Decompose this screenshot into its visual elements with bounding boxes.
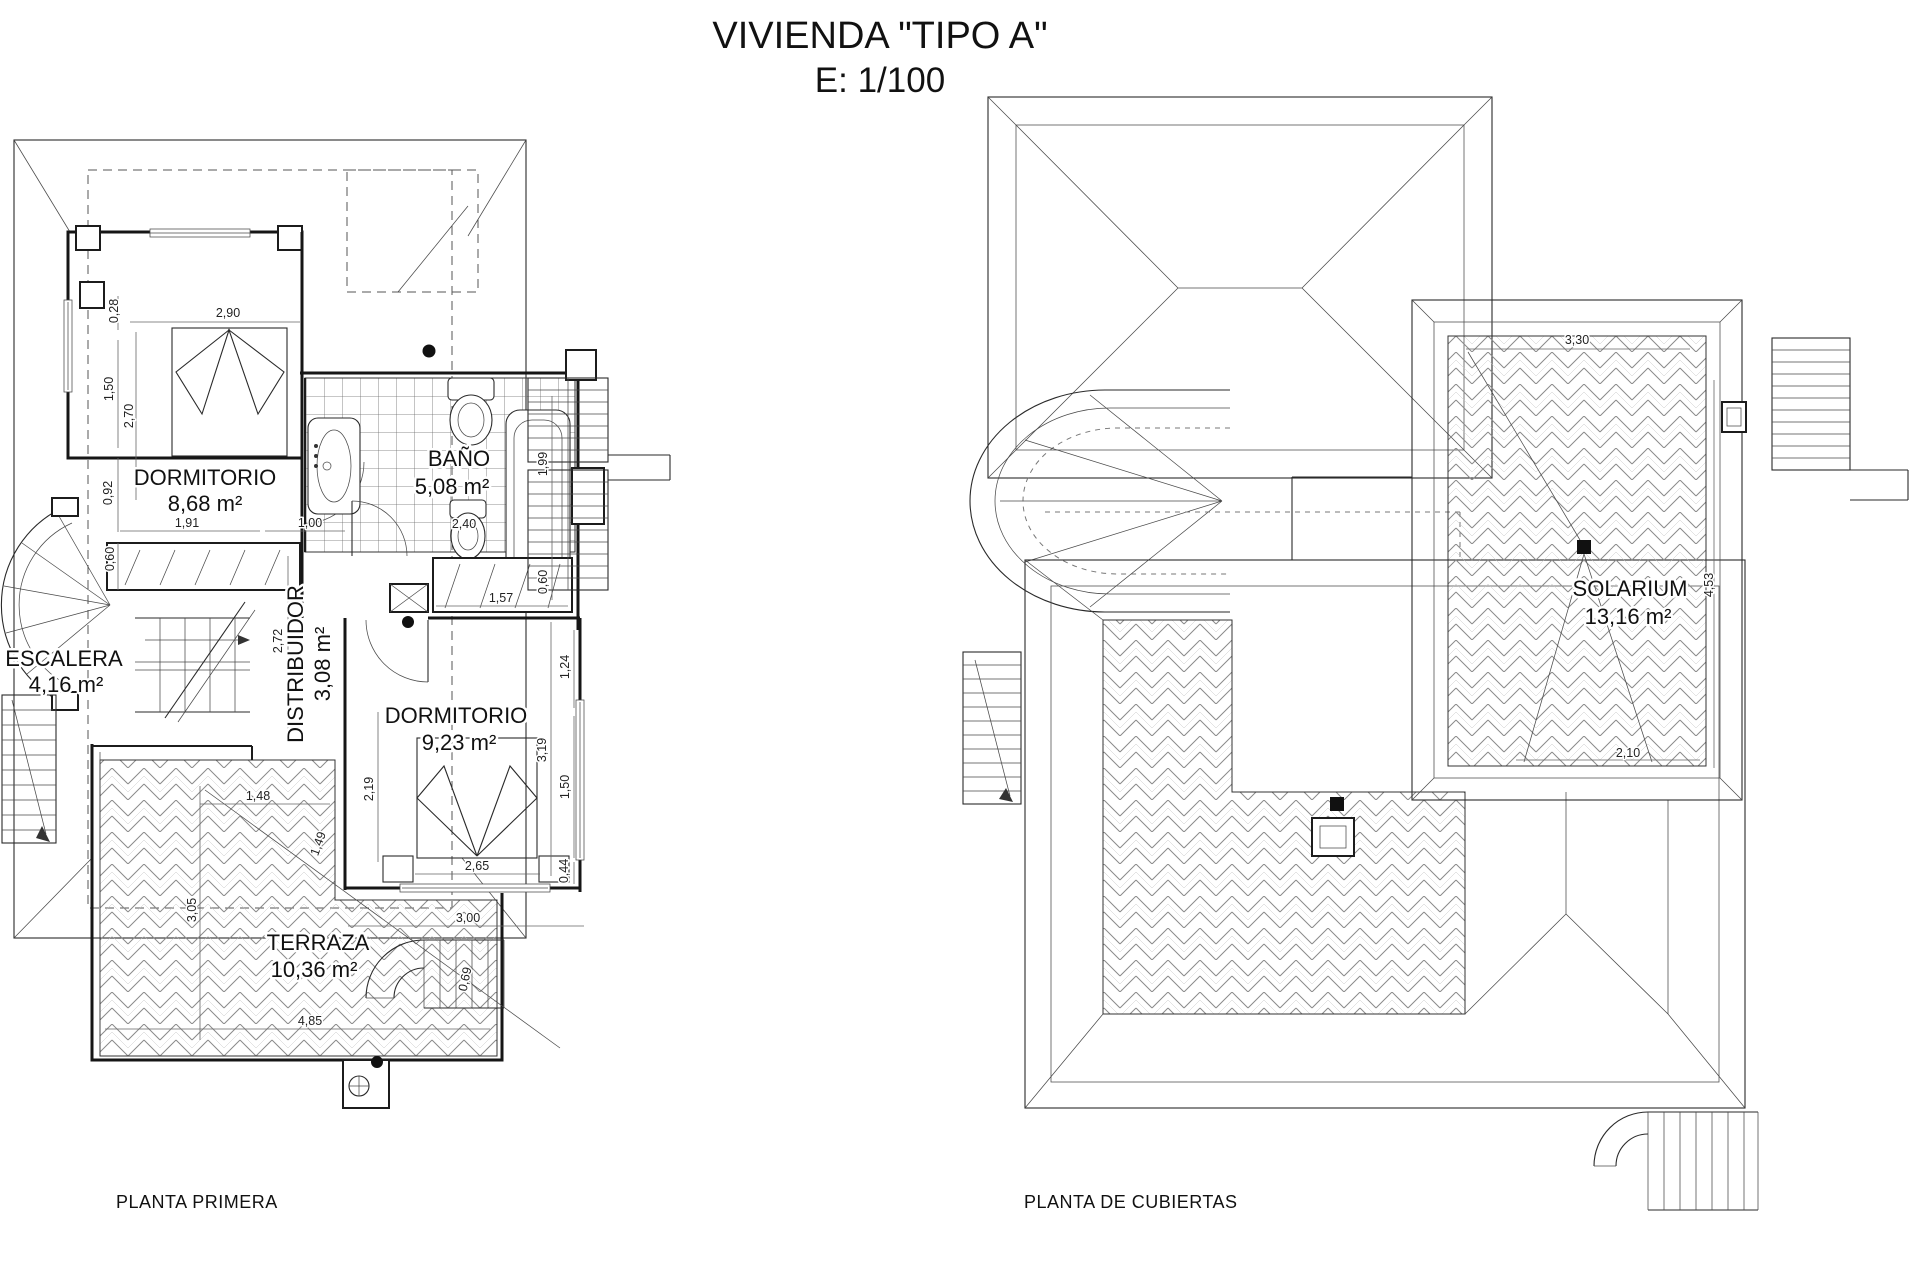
wall-pilaster <box>278 226 302 250</box>
dimension-label: 3,19 <box>535 738 549 762</box>
plan-planta-cubiertas: SOLARIUM13,16 m²3,304,532,10 PLANTA DE C… <box>963 97 1908 1212</box>
apse-roof <box>970 390 1230 612</box>
sheet-title: VIVIENDA "TIPO A" <box>712 15 1047 57</box>
straight-stair <box>135 602 255 722</box>
wall-pilaster <box>572 468 604 524</box>
room-label: TERRAZA <box>267 930 370 955</box>
dimension-label: 2,19 <box>362 777 376 801</box>
dimension-label: 0,28 <box>107 299 121 323</box>
room-area-label: 4,16 m² <box>29 672 104 697</box>
room-area-label: 9,23 m² <box>422 730 497 755</box>
roof-stair-right-top <box>1772 338 1908 500</box>
wall-pilaster <box>80 282 104 308</box>
dimension-label: 0,92 <box>101 481 115 505</box>
wall-pilaster <box>76 226 100 250</box>
roof-drain-dot <box>423 345 436 358</box>
dimension-label: 2,90 <box>216 306 240 320</box>
solarium-marker <box>1577 540 1591 554</box>
roof-ladder-left <box>963 652 1021 804</box>
dimension-label: 1,24 <box>558 655 572 679</box>
drawing-sheet: VIVIENDA "TIPO A" E: 1/100 <box>0 0 1920 1280</box>
nightstand <box>383 856 413 882</box>
dimension-label: 1,91 <box>175 516 199 530</box>
stair-direction-arrow <box>238 635 250 645</box>
door-bedroom-2 <box>366 620 428 682</box>
roof-marker <box>1330 797 1344 811</box>
laundry-fixture <box>390 584 428 628</box>
caption-planta-cubiertas: PLANTA DE CUBIERTAS <box>1024 1192 1238 1212</box>
dimension-label: 1,99 <box>536 452 550 476</box>
dimension-label: 1,50 <box>102 377 116 401</box>
wardrobe-1 <box>107 543 300 590</box>
roof-stair-bottom-right <box>1594 1112 1758 1210</box>
room-label: DORMITORIO <box>385 703 528 728</box>
room-area-label: 3,08 m² <box>310 627 335 702</box>
dimension-label: 2,40 <box>452 517 476 531</box>
room-area-label: 10,36 m² <box>271 957 358 982</box>
plan-planta-primera: DORMITORIO8,68 m²BAÑO5,08 m²ESCALERA4,16… <box>1 140 670 1212</box>
room-label: SOLARIUM <box>1573 576 1688 601</box>
dimension-label: 1,00 <box>298 516 322 530</box>
dimension-label: 2,10 <box>1616 746 1640 760</box>
sink <box>308 418 360 514</box>
dimension-label: 0,60 <box>536 570 550 594</box>
dimension-label: 3,05 <box>185 898 199 922</box>
dimension-label: 2,72 <box>271 629 285 653</box>
caption-planta-primera: PLANTA PRIMERA <box>116 1192 278 1212</box>
upper-roof-mass <box>988 97 1492 478</box>
room-label: DISTRIBUIDOR <box>283 585 308 743</box>
room-label: BAÑO <box>428 446 490 471</box>
roof-hatch-outlet <box>1312 818 1354 856</box>
room-area-label: 13,16 m² <box>1585 604 1672 629</box>
dimension-label: 4,85 <box>298 1014 322 1028</box>
dimension-label: 1,50 <box>558 775 572 799</box>
sheet-scale: E: 1/100 <box>815 61 945 100</box>
dimension-label: 4,53 <box>1702 573 1716 597</box>
bed-1 <box>172 328 287 456</box>
dimension-label: 1,57 <box>489 591 513 605</box>
dimension-label: 2,65 <box>465 859 489 873</box>
lower-terrace-hatch <box>1103 620 1465 1014</box>
room-area-label: 5,08 m² <box>415 474 490 499</box>
terrace-light-fixture <box>343 1056 389 1108</box>
left-ladder-stair <box>2 695 56 843</box>
floor-plan-canvas: VIVIENDA "TIPO A" E: 1/100 <box>0 0 1920 1280</box>
room-area-label: 8,68 m² <box>168 491 243 516</box>
solarium-wing <box>1412 300 1746 800</box>
toilet <box>448 378 494 445</box>
dimension-label: 1,48 <box>246 789 270 803</box>
dimension-label: 0,44 <box>557 859 571 883</box>
wall-fixture <box>1722 402 1746 432</box>
wall-pilaster <box>566 350 596 380</box>
room-label: ESCALERA <box>5 646 123 671</box>
dimension-label: 3,00 <box>456 911 480 925</box>
dimension-label: 0,60 <box>103 547 117 571</box>
title-block: VIVIENDA "TIPO A" E: 1/100 <box>712 15 1047 100</box>
dimension-label: 2,70 <box>122 404 136 428</box>
room-label: DORMITORIO <box>134 465 277 490</box>
dimension-label: 3,30 <box>1565 333 1589 347</box>
